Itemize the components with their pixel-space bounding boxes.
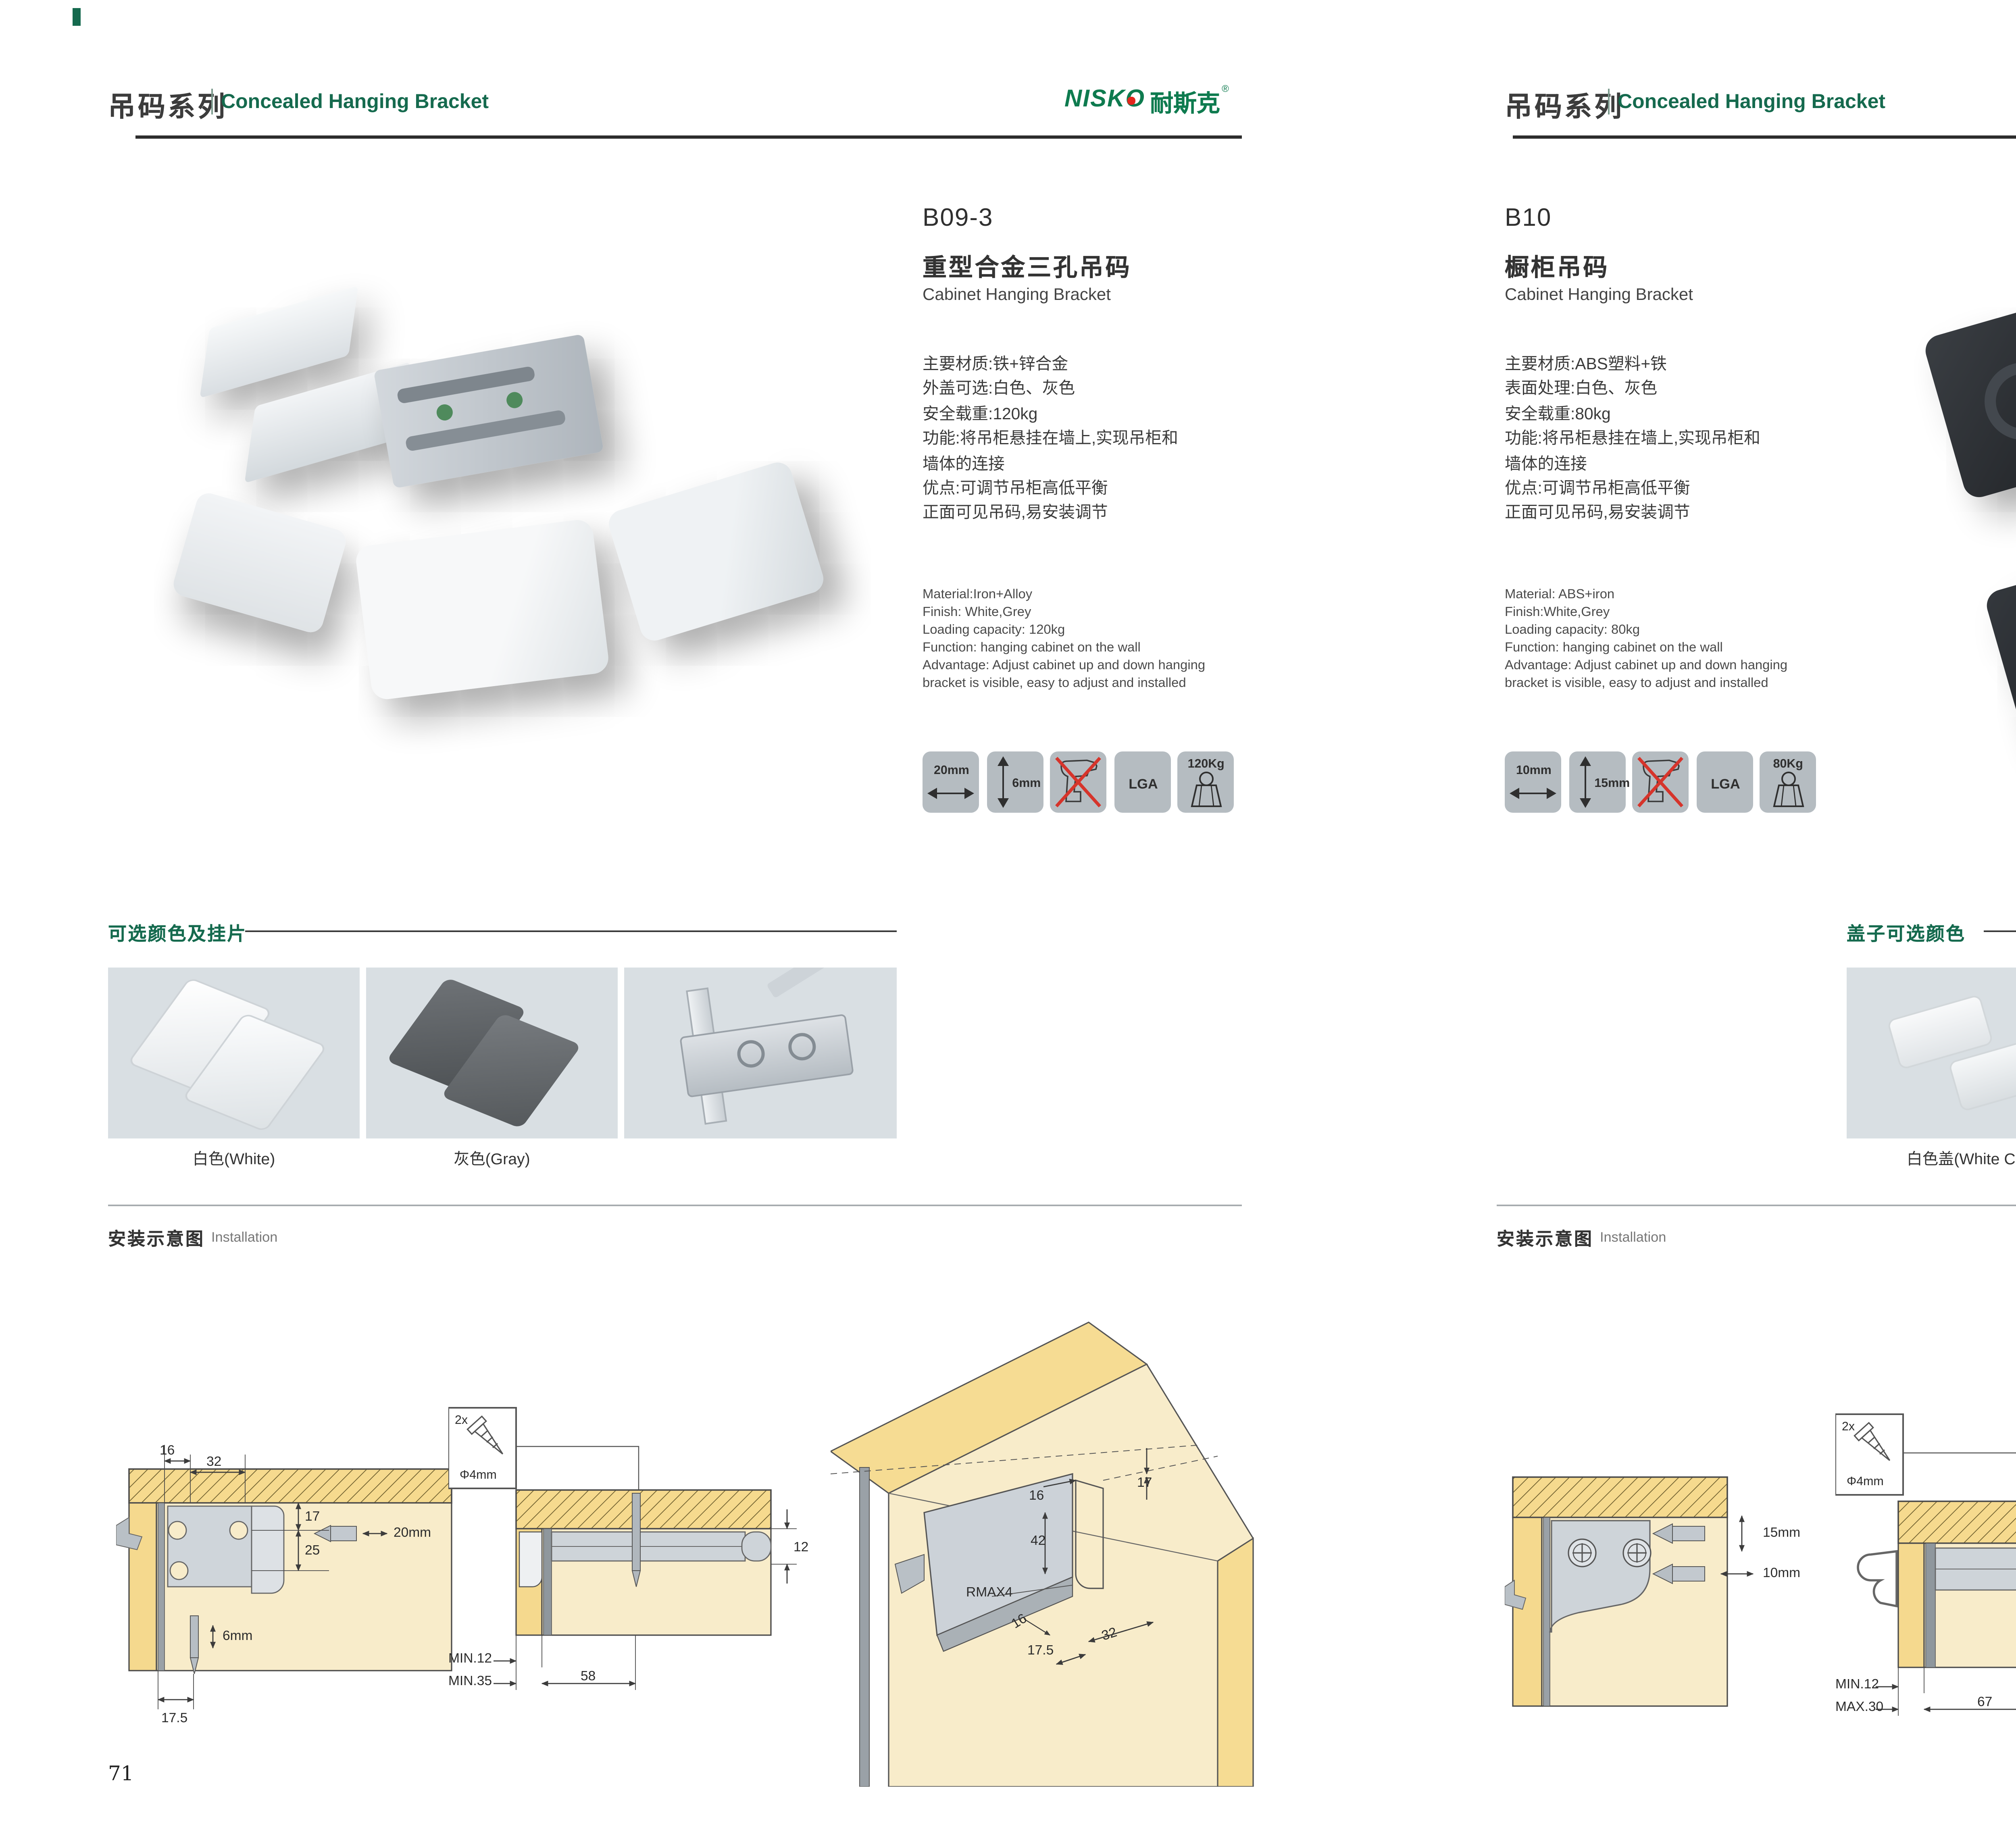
height-label: 15mm <box>1594 776 1630 790</box>
dim-label: 17.5 <box>1027 1642 1054 1658</box>
load-label: 80Kg <box>1773 756 1803 771</box>
h-arrow-icon <box>1510 784 1556 803</box>
load-icon: 80Kg <box>1760 751 1817 813</box>
series-title-en: Concealed Hanging Bracket <box>1618 90 1885 113</box>
dim-label: 12 <box>793 1538 808 1555</box>
cover-cap <box>171 490 349 635</box>
page-left: 吊码系列 Concealed Hanging Bracket NISKO 耐斯克… <box>0 0 1352 1848</box>
no-drill-icon <box>1633 751 1689 813</box>
dim-label: 32 <box>206 1453 221 1469</box>
specs-en: Material: ABS+iron Finish:White,Grey Loa… <box>1505 587 1787 693</box>
spec-line: Finish: White,Grey <box>923 605 1205 622</box>
spec-line: bracket is visible, easy to adjust and i… <box>1505 675 1787 693</box>
swatch-white-cap <box>1847 968 2016 1138</box>
caption-white-cap: 白色盖(White Cap) <box>1860 1147 2016 1169</box>
cover-cap <box>605 459 827 644</box>
dim-label: RMAX4 <box>966 1584 1012 1600</box>
screw-dia: Φ4mm <box>1847 1474 1884 1488</box>
series-title-cn: 吊码系列 <box>1505 84 1624 124</box>
specs-en: Material:Iron+Alloy Finish: White,Grey L… <box>923 587 1205 693</box>
weight-icon <box>1186 771 1228 810</box>
spec-line: 外盖可选:白色、灰色 <box>923 378 1178 403</box>
product-name-cn: 重型合金三孔吊码 <box>923 250 1131 284</box>
spec-line: 墙体的连接 <box>1505 453 1760 478</box>
weight-icon <box>1768 771 1810 810</box>
swatch-bracket-hardware <box>624 968 897 1138</box>
series-title-en: Concealed Hanging Bracket <box>221 90 489 113</box>
section-divider <box>1497 1205 2016 1206</box>
install-title-cn: 安装示意图 <box>108 1226 205 1251</box>
dim-label: 58 <box>581 1667 596 1684</box>
height-icon: 15mm <box>1568 751 1625 813</box>
dim-label: 15mm <box>1763 1524 1800 1540</box>
logo-registered-icon: ® <box>1222 85 1229 95</box>
width-label: 20mm <box>934 763 969 777</box>
caption-gray: 灰色(Gray) <box>379 1147 605 1169</box>
install-diagram-2: 2x Φ4mm 12 MIN.12 MIN.35 58 <box>448 1384 861 1790</box>
install-diagram-1: 16 32 17 25 20mm 6mm 17.5 <box>116 1432 503 1811</box>
spec-line: 功能:将吊柜悬挂在墙上,实现吊柜和 <box>923 428 1178 453</box>
logo-cn: 耐斯克 <box>1150 85 1220 119</box>
bracket-body <box>1983 528 2016 755</box>
spec-line: 安全载重:80kg <box>1505 403 1760 428</box>
colors-section-title: 盖子可选颜色 <box>1847 921 1966 947</box>
dim-label: 42 <box>1031 1532 1045 1548</box>
width-label: 10mm <box>1516 763 1552 777</box>
colors-section-title: 可选颜色及挂片 <box>108 921 247 947</box>
feature-icons: 10mm 15mm LGA 80Kg <box>1505 751 1827 813</box>
product-code: B09-3 <box>923 205 993 234</box>
dim-label: 16 <box>160 1442 175 1458</box>
install-diagram-3: 17 16 42 RMAX4 16 32 17.5 <box>831 1319 1282 1787</box>
dim-label: MAX.30 <box>1835 1698 1883 1714</box>
spec-line: 正面可见吊码,易安装调节 <box>923 502 1178 527</box>
dim-label: 17 <box>305 1508 320 1524</box>
specs-cn: 主要材质:铁+锌合金 外盖可选:白色、灰色 安全载重:120kg 功能:将吊柜悬… <box>923 353 1178 527</box>
v-arrow-icon <box>1575 756 1594 808</box>
logo-dot-icon <box>1127 97 1135 104</box>
spec-line: Material:Iron+Alloy <box>923 587 1205 605</box>
install-title-en: Installation <box>1600 1229 1666 1245</box>
spec-line: Advantage: Adjust cabinet up and down ha… <box>923 658 1205 675</box>
dim-label: 10mm <box>1763 1564 1800 1580</box>
brand-logo: NISKO 耐斯克 ® <box>1064 85 1229 119</box>
cover-cap <box>354 518 610 701</box>
header-rule <box>135 135 1242 138</box>
spec-line: 功能:将吊柜悬挂在墙上,实现吊柜和 <box>1505 428 1760 453</box>
height-label: 6mm <box>1012 776 1041 790</box>
dim-label: 67 <box>1977 1693 1992 1709</box>
spec-line: 墙体的连接 <box>923 453 1178 478</box>
swatch-gray-caps <box>366 968 618 1138</box>
spec-line: 主要材质:ABS塑料+铁 <box>1505 353 1760 378</box>
dim-label: MIN.12 <box>448 1650 492 1666</box>
spec-line: Advantage: Adjust cabinet up and down ha… <box>1505 658 1787 675</box>
spec-line: Loading capacity: 120kg <box>923 622 1205 640</box>
spec-line: 安全载重:120kg <box>923 403 1178 428</box>
page-right: 吊码系列 Concealed Hanging Bracket NISKO 耐斯克… <box>1352 0 2016 1848</box>
v-arrow-icon <box>993 756 1012 808</box>
load-icon: 120Kg <box>1178 751 1235 813</box>
spec-line: 正面可见吊码,易安装调节 <box>1505 502 1760 527</box>
screw-qty: 2x <box>455 1413 468 1427</box>
dim-label: 17.5 <box>161 1709 187 1725</box>
header-separator <box>1608 89 1610 114</box>
cert-icon: LGA <box>1696 751 1753 813</box>
spec-line: bracket is visible, easy to adjust and i… <box>923 675 1205 693</box>
colors-section-rule <box>245 930 897 933</box>
spec-line: Finish:White,Grey <box>1505 605 1787 622</box>
header-separator <box>211 89 213 114</box>
wall-plate <box>200 285 358 398</box>
swatch-white-caps <box>108 968 360 1138</box>
product-name-cn: 橱柜吊码 <box>1505 250 1609 284</box>
h-arrow-icon <box>927 784 974 803</box>
spec-line: Function: hanging cabinet on the wall <box>923 640 1205 658</box>
dim-label: 6mm <box>223 1627 253 1643</box>
colors-section-rule <box>1984 930 2016 933</box>
product-code: B10 <box>1505 205 1552 234</box>
series-title-cn: 吊码系列 <box>108 84 227 124</box>
spec-line: 优点:可调节吊柜高低平衡 <box>923 477 1178 502</box>
height-icon: 6mm <box>986 751 1043 813</box>
screw-dia: Φ4mm <box>460 1467 497 1482</box>
load-label: 120Kg <box>1188 756 1225 771</box>
spec-line: 优点:可调节吊柜高低平衡 <box>1505 477 1760 502</box>
dim-label: 17 <box>1137 1474 1152 1490</box>
cert-icon: LGA <box>1114 751 1170 813</box>
swatch-row <box>0 968 1352 1138</box>
specs-cn: 主要材质:ABS塑料+铁 表面处理:白色、灰色 安全载重:80kg 功能:将吊柜… <box>1505 353 1760 527</box>
spec-line: Function: hanging cabinet on the wall <box>1505 640 1787 658</box>
no-drill-icon <box>1050 751 1107 813</box>
bracket-body <box>1922 273 2016 501</box>
cert-label: LGA <box>1711 776 1740 792</box>
header-rule <box>1513 135 2016 138</box>
caption-white: 白色(White) <box>121 1147 347 1169</box>
spec-line: Loading capacity: 80kg <box>1505 622 1787 640</box>
install-title-en: Installation <box>211 1229 277 1245</box>
metal-bracket <box>373 334 604 488</box>
swatch-row <box>1352 968 2016 1138</box>
page-number: 71 <box>108 1761 134 1785</box>
section-divider <box>108 1205 1242 1206</box>
product-name-en: Cabinet Hanging Bracket <box>923 285 1111 305</box>
dim-label: MIN.35 <box>448 1672 492 1688</box>
screw-qty: 2x <box>1842 1419 1855 1434</box>
width-icon: 10mm <box>1505 751 1561 813</box>
install-diagram-1: 15mm 10mm <box>1505 1432 1868 1811</box>
install-title-cn: 安装示意图 <box>1497 1226 1593 1251</box>
spec-line: Material: ABS+iron <box>1505 587 1787 605</box>
product-name-en: Cabinet Hanging Bracket <box>1505 285 1693 305</box>
cert-label: LGA <box>1129 776 1158 792</box>
spec-line: 表面处理:白色、灰色 <box>1505 378 1760 403</box>
spec-line: 主要材质:铁+锌合金 <box>923 353 1178 378</box>
product-photo <box>108 216 897 905</box>
dim-label: 20mm <box>394 1524 431 1540</box>
dim-label: 16 <box>1029 1487 1044 1503</box>
install-diagram-2: 2x Φ4mm 18 MIN.12 MAX.30 67 <box>1835 1384 2016 1790</box>
dim-label: 25 <box>305 1542 320 1558</box>
catalog-spread: 吊码系列 Concealed Hanging Bracket NISKO 耐斯克… <box>0 0 2016 1848</box>
product-photo <box>1847 216 2016 905</box>
dim-label: MIN.12 <box>1835 1675 1879 1692</box>
width-icon: 20mm <box>923 751 979 813</box>
feature-icons: 20mm 6mm LGA 120Kg <box>923 751 1245 813</box>
